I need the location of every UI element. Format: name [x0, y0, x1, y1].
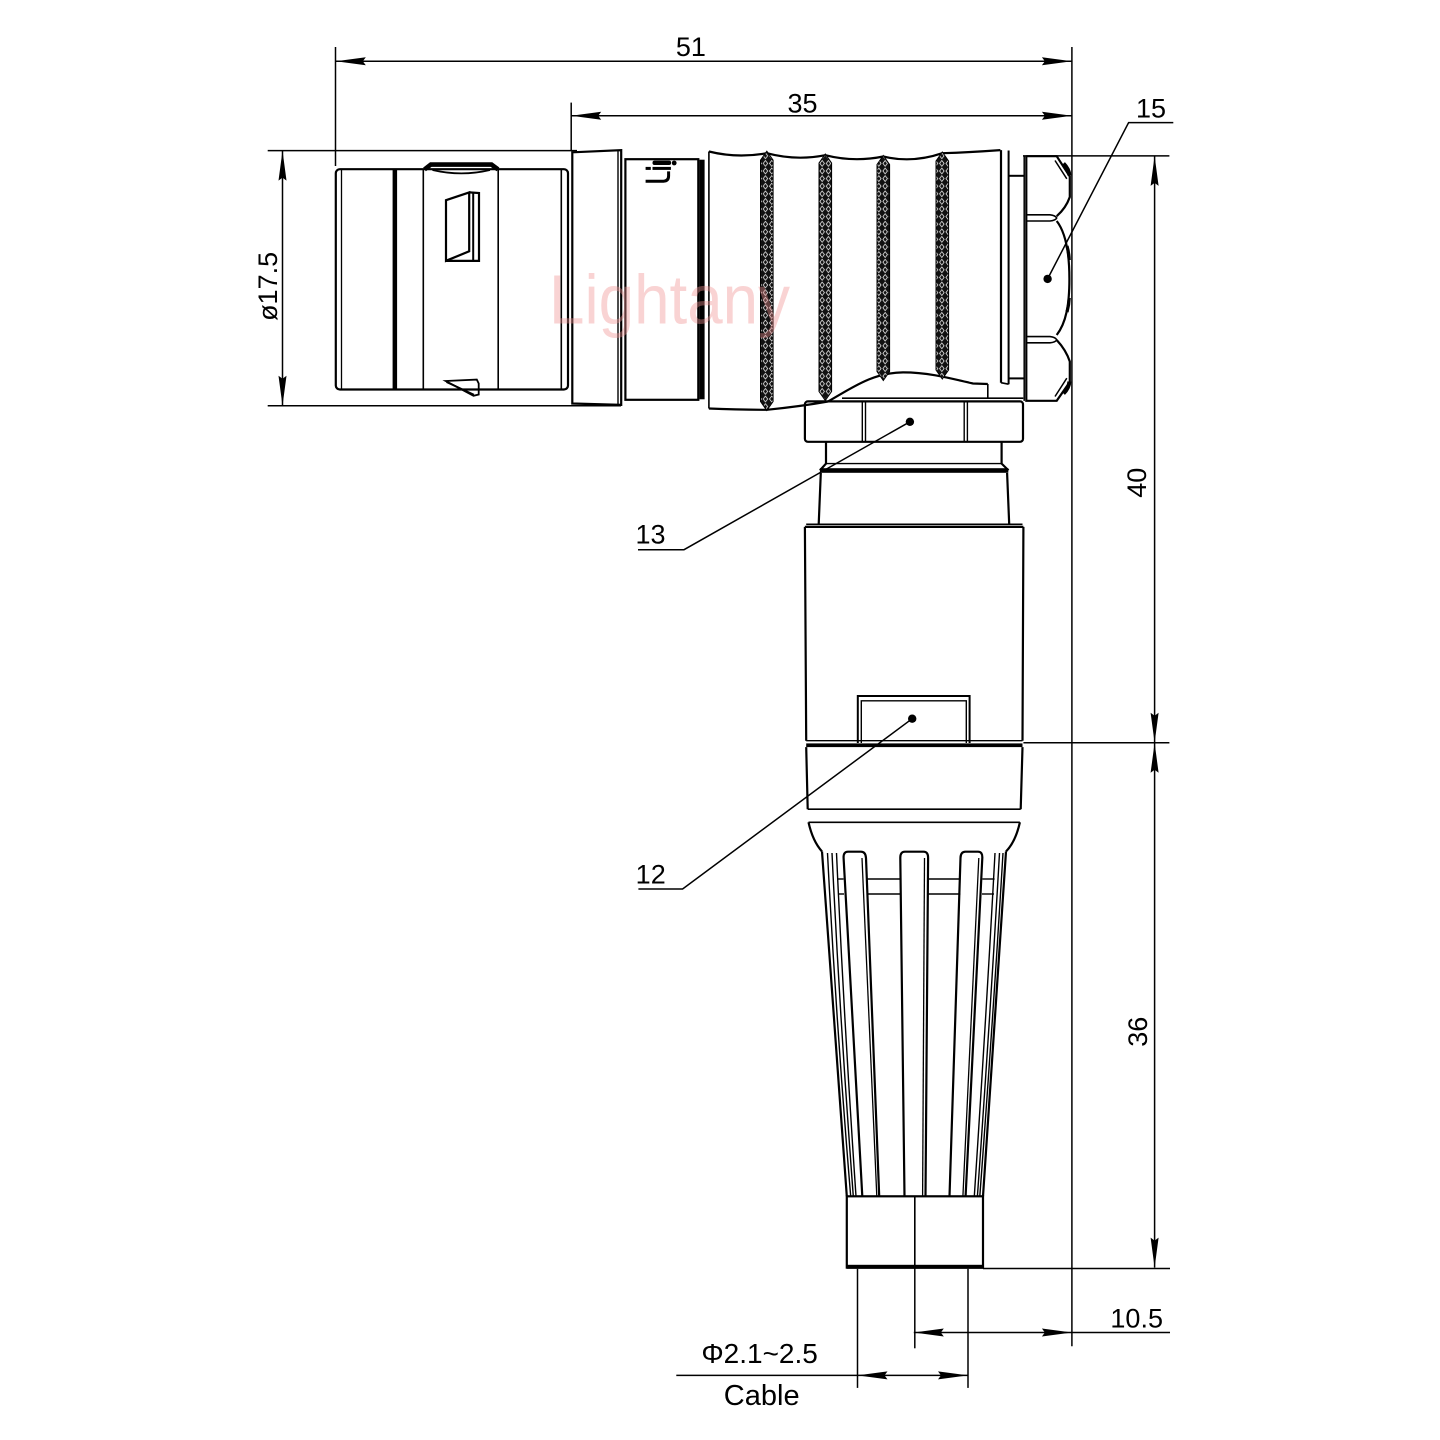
svg-text:36: 36 — [1123, 1017, 1153, 1047]
svg-text:35: 35 — [787, 89, 817, 119]
svg-text:15: 15 — [1136, 94, 1166, 124]
svg-text:Lightany: Lightany — [549, 261, 790, 339]
svg-text:Φ2.1~2.5: Φ2.1~2.5 — [701, 1338, 818, 1369]
svg-text:10.5: 10.5 — [1110, 1304, 1163, 1334]
svg-text:51: 51 — [676, 32, 706, 62]
svg-text:ø17.5: ø17.5 — [253, 252, 283, 321]
svg-text:40: 40 — [1122, 468, 1152, 498]
svg-text:13: 13 — [635, 520, 665, 550]
svg-text:Cable: Cable — [724, 1380, 800, 1412]
svg-text:12: 12 — [636, 860, 666, 890]
